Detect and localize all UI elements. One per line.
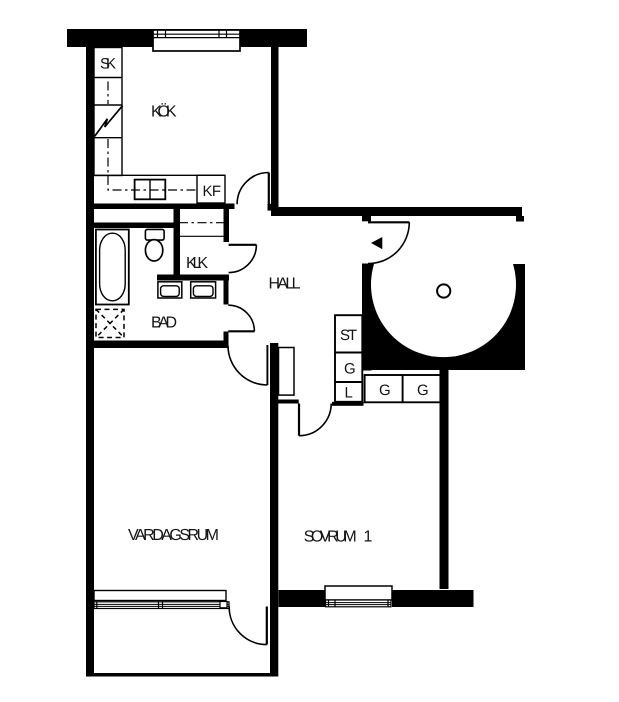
svg-text:HALL: HALL [269,275,301,292]
svg-text:VARDAGSRUM: VARDAGSRUM [128,527,219,544]
svg-text:KF: KF [203,183,222,200]
svg-text:KLK: KLK [186,255,208,272]
svg-text:ST: ST [340,327,357,344]
svg-text:G: G [344,361,356,378]
svg-text:KÖK: KÖK [151,102,177,120]
svg-text:BAD: BAD [151,315,177,332]
svg-text:G: G [417,382,429,399]
svg-text:G: G [379,382,391,399]
svg-text:1: 1 [364,528,373,545]
svg-text:L: L [345,385,353,402]
svg-text:SOVRUM: SOVRUM [304,528,357,545]
svg-text:SK: SK [100,56,116,73]
